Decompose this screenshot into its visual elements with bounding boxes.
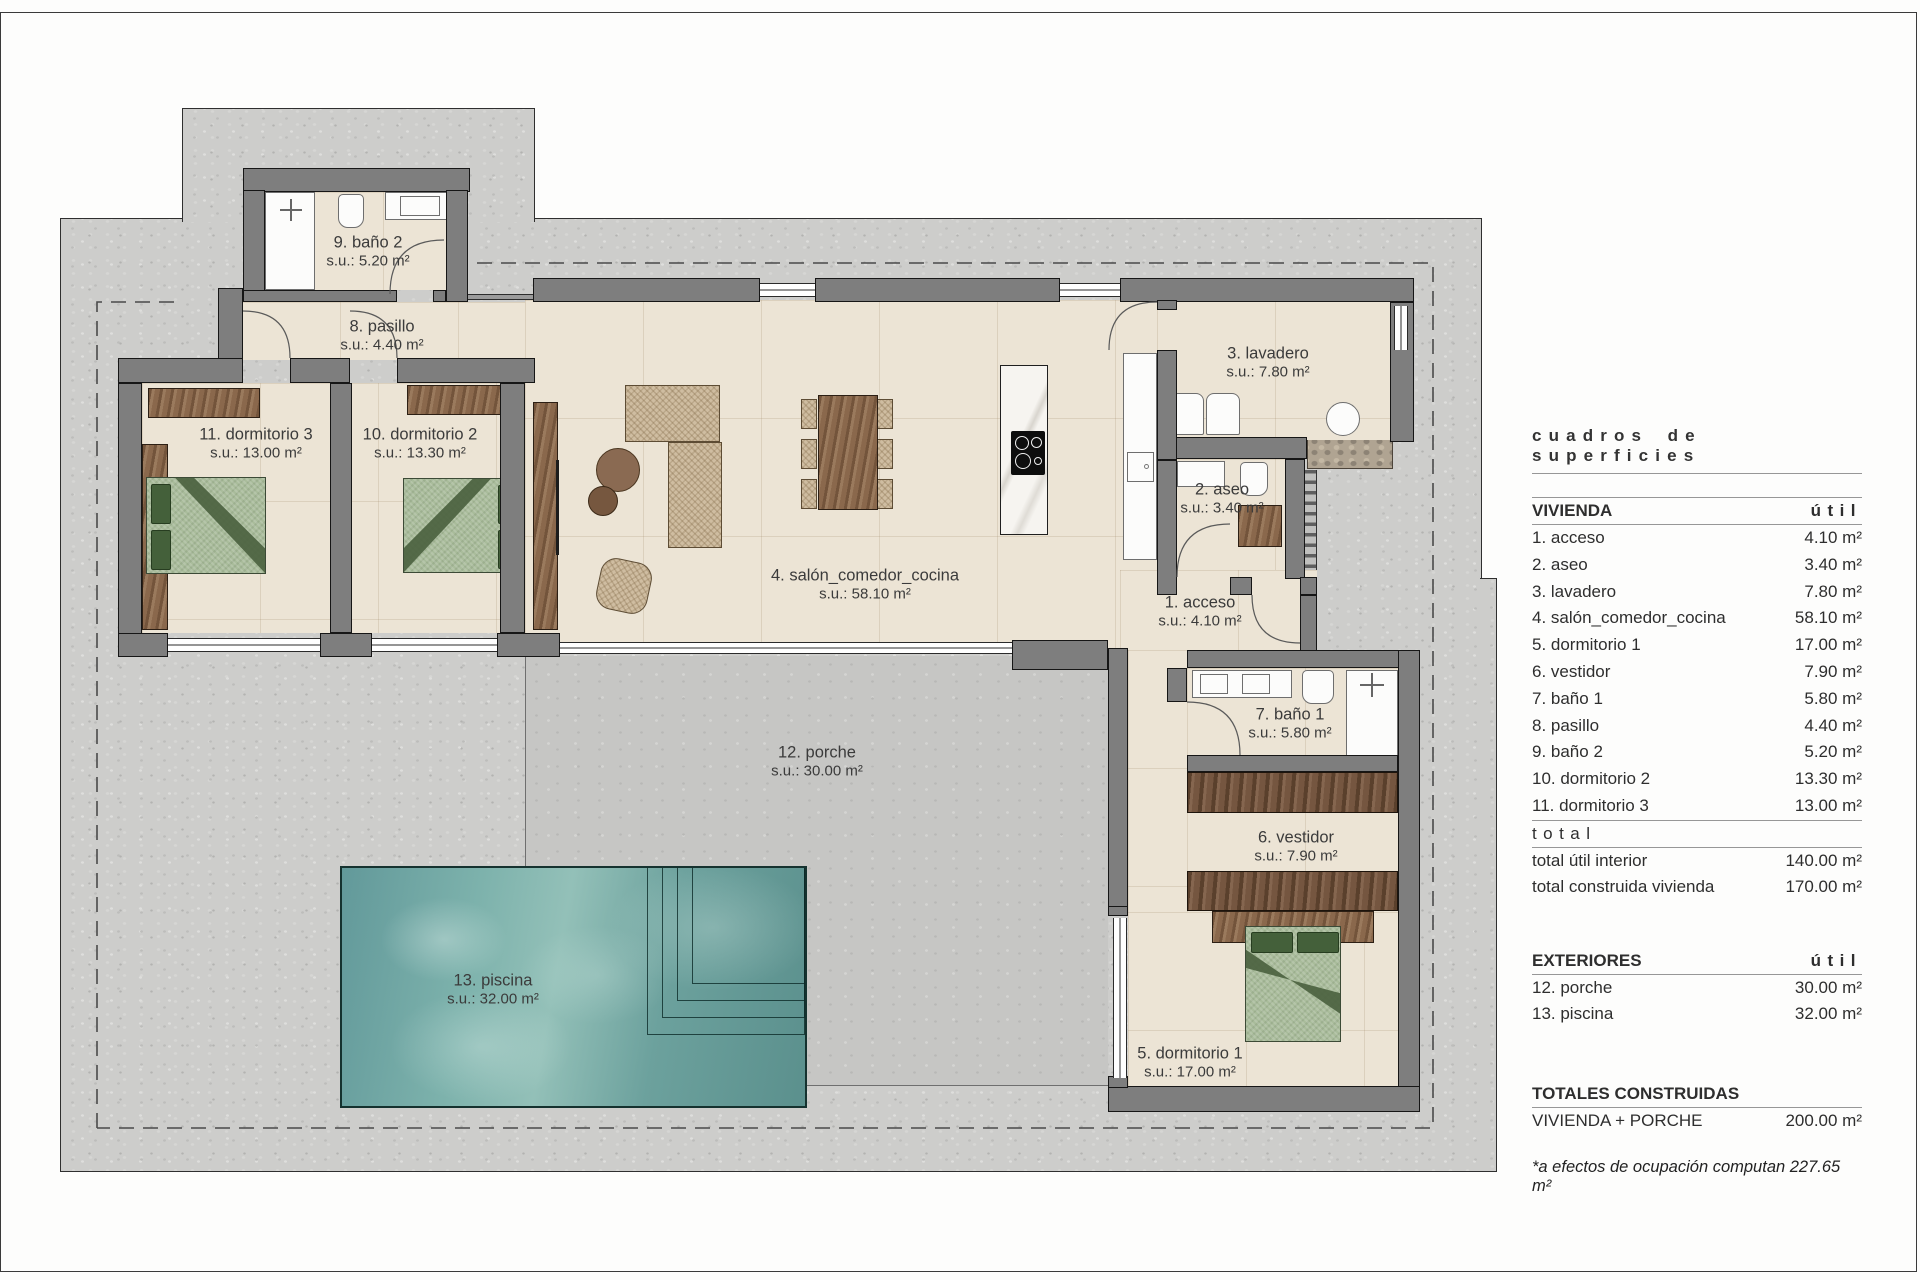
wall	[1157, 350, 1177, 460]
pool-steps-4	[692, 868, 805, 984]
room-area: s.u.: 32.00 m²	[447, 990, 539, 1008]
section-header: EXTERIORES	[1532, 951, 1642, 971]
wall	[118, 633, 168, 657]
dining-chair	[801, 399, 817, 429]
table-title: cuadros de superficies	[1532, 426, 1862, 466]
room-name: 3. lavadero	[1226, 346, 1309, 364]
room-area: s.u.: 3.40 m²	[1180, 499, 1263, 517]
entry-path-pebbles	[1307, 435, 1393, 469]
wall	[1108, 648, 1128, 914]
wall	[1300, 595, 1317, 652]
row-value: 17.00 m²	[1795, 632, 1862, 659]
sink-bano1	[1200, 674, 1228, 694]
room-label-pasillo: 8. pasillo s.u.: 4.40 m²	[340, 319, 423, 354]
wardrobe-vestidor-top	[1187, 772, 1398, 813]
window	[372, 638, 497, 652]
sink-bano1	[1242, 674, 1270, 694]
sliding-door	[560, 642, 1012, 654]
dining-chair	[877, 439, 893, 469]
sink-bano2	[400, 196, 440, 216]
boiler	[1326, 402, 1360, 436]
table-row: total útil interior140.00 m²	[1532, 848, 1862, 875]
room-area: s.u.: 13.30 m²	[363, 444, 478, 462]
plot-ground-right	[1480, 578, 1497, 1172]
table-row: 6. vestidor7.90 m²	[1532, 659, 1862, 686]
wall	[118, 383, 142, 657]
wardrobe-vestidor-bottom	[1187, 871, 1398, 911]
wall	[1167, 668, 1187, 702]
shower-faucet-icon	[1371, 673, 1373, 697]
total-section-header: total	[1532, 821, 1862, 847]
row-label: total útil interior	[1532, 848, 1647, 875]
wall	[330, 383, 352, 633]
table-row: 13. piscina32.00 m²	[1532, 1001, 1862, 1028]
room-name: 8. pasillo	[340, 319, 423, 337]
row-value: 58.10 m²	[1795, 605, 1862, 632]
room-name: 5. dormitorio 1	[1137, 1046, 1242, 1064]
row-value: 200.00 m²	[1785, 1108, 1862, 1135]
row-value: 32.00 m²	[1795, 1001, 1862, 1028]
dining-chair	[801, 439, 817, 469]
room-label-dormitorio1: 5. dormitorio 1 s.u.: 17.00 m²	[1137, 1046, 1242, 1081]
row-value: 13.00 m²	[1795, 793, 1862, 820]
row-label: 10. dormitorio 2	[1532, 766, 1650, 793]
surface-table: cuadros de superficies VIVIENDA útil 1. …	[1532, 426, 1862, 1196]
sofa-top	[625, 385, 720, 442]
section-header: TOTALES CONSTRUIDAS	[1532, 1084, 1739, 1104]
row-value: 5.80 m²	[1804, 686, 1862, 713]
room-name: 6. vestidor	[1254, 830, 1337, 848]
room-area: s.u.: 13.00 m²	[199, 444, 312, 462]
row-value: 30.00 m²	[1795, 975, 1862, 1002]
wall	[446, 190, 468, 302]
bed-pillow	[151, 484, 171, 524]
shower-faucet-icon	[290, 199, 292, 221]
sideboard-salon	[533, 402, 558, 630]
room-label-porche: 12. porche s.u.: 30.00 m²	[771, 745, 863, 780]
row-value: 13.30 m²	[1795, 766, 1862, 793]
toilet-bano1	[1302, 670, 1334, 704]
room-name: 10. dormitorio 2	[363, 427, 478, 445]
room-name: 11. dormitorio 3	[199, 427, 312, 445]
room-label-piscina: 13. piscina s.u.: 32.00 m²	[447, 973, 539, 1008]
room-label-vestidor: 6. vestidor s.u.: 7.90 m²	[1254, 830, 1337, 865]
dining-table	[818, 395, 878, 510]
window	[760, 283, 815, 297]
row-value: 5.20 m²	[1804, 739, 1862, 766]
wall	[243, 168, 470, 192]
room-area: s.u.: 58.10 m²	[771, 585, 959, 603]
table-row: 8. pasillo4.40 m²	[1532, 713, 1862, 740]
room-name: 13. piscina	[447, 973, 539, 991]
row-value: 170.00 m²	[1785, 874, 1862, 901]
table-row: total construida vivienda170.00 m²	[1532, 874, 1862, 901]
row-label: VIVIENDA + PORCHE	[1532, 1108, 1703, 1135]
window	[1394, 306, 1408, 350]
totales-header-row: TOTALES CONSTRUIDAS	[1532, 1081, 1862, 1107]
bed-pillow	[1251, 932, 1293, 953]
tv-icon	[556, 460, 559, 555]
room-name: 4. salón_comedor_cocina	[771, 568, 959, 586]
table-row: 9. baño 25.20 m²	[1532, 739, 1862, 766]
row-label: 11. dormitorio 3	[1532, 793, 1649, 820]
room-name: 1. acceso	[1158, 595, 1241, 613]
coffee-table-small	[588, 486, 618, 516]
row-label: 2. aseo	[1532, 552, 1588, 579]
wall	[497, 633, 560, 657]
sink-drain-icon	[1144, 464, 1149, 469]
table-row: 5. dormitorio 117.00 m²	[1532, 632, 1862, 659]
dining-chair	[801, 479, 817, 509]
row-label: 4. salón_comedor_cocina	[1532, 605, 1726, 632]
room-area: s.u.: 30.00 m²	[771, 762, 863, 780]
row-label: 8. pasillo	[1532, 713, 1599, 740]
vivienda-header-row: VIVIENDA útil	[1532, 498, 1862, 524]
kitchen-sink	[1127, 452, 1154, 482]
wall	[320, 633, 372, 657]
room-area: s.u.: 17.00 m²	[1137, 1063, 1242, 1081]
room-label-bano2: 9. baño 2 s.u.: 5.20 m²	[326, 235, 409, 270]
room-label-aseo: 2. aseo s.u.: 3.40 m²	[1180, 482, 1263, 517]
floor-plan-sheet: 1. acceso s.u.: 4.10 m² 2. aseo s.u.: 3.…	[0, 0, 1920, 1280]
row-label: 3. lavadero	[1532, 579, 1616, 606]
wall	[1157, 460, 1177, 595]
table-row: 1. acceso4.10 m²	[1532, 525, 1862, 552]
toilet-bano2	[338, 194, 364, 228]
wall	[1187, 755, 1398, 772]
table-row: 7. baño 15.80 m²	[1532, 686, 1862, 713]
row-value: 140.00 m²	[1785, 848, 1862, 875]
row-label: total construida vivienda	[1532, 874, 1714, 901]
wall	[1230, 577, 1252, 595]
row-label: 9. baño 2	[1532, 739, 1603, 766]
room-area: s.u.: 5.20 m²	[326, 252, 409, 270]
burner-icon	[1034, 457, 1042, 465]
door-jamb	[1157, 300, 1177, 310]
room-label-acceso: 1. acceso s.u.: 4.10 m²	[1158, 595, 1241, 630]
table-row: 3. lavadero7.80 m²	[1532, 579, 1862, 606]
room-area: s.u.: 4.10 m²	[1158, 612, 1241, 630]
table-row: 11. dormitorio 313.00 m²	[1532, 793, 1862, 820]
room-name: 7. baño 1	[1248, 707, 1331, 725]
room-name: 12. porche	[771, 745, 863, 763]
washer	[1206, 393, 1240, 435]
room-area: s.u.: 7.80 m²	[1226, 363, 1309, 381]
bed-dormitorio1	[1245, 926, 1341, 1042]
bed-dormitorio3	[146, 477, 266, 574]
wall	[1187, 650, 1420, 668]
row-label: 5. dormitorio 1	[1532, 632, 1641, 659]
burner-icon	[1031, 437, 1042, 448]
wall	[500, 383, 525, 633]
room-name: 9. baño 2	[326, 235, 409, 253]
wardrobe-dormitorio3	[148, 388, 260, 418]
table-row: 12. porche30.00 m²	[1532, 975, 1862, 1002]
row-label: 7. baño 1	[1532, 686, 1603, 713]
kitchen-island	[1000, 365, 1048, 535]
window	[1113, 918, 1127, 1078]
room-label-dormitorio2: 10. dormitorio 2 s.u.: 13.30 m²	[363, 427, 478, 462]
section-header: VIVIENDA	[1532, 501, 1612, 521]
wall	[1108, 906, 1128, 916]
wall	[1157, 437, 1307, 459]
room-name: 2. aseo	[1180, 482, 1263, 500]
wall	[1120, 278, 1414, 302]
wall	[1012, 640, 1108, 670]
wall	[533, 278, 760, 302]
window	[1060, 283, 1120, 297]
row-label: 6. vestidor	[1532, 659, 1610, 686]
row-value: 4.40 m²	[1804, 713, 1862, 740]
table-row: 2. aseo3.40 m²	[1532, 552, 1862, 579]
room-label-dormitorio3: 11. dormitorio 3 s.u.: 13.00 m²	[199, 427, 312, 462]
row-value: 7.80 m²	[1804, 579, 1862, 606]
wall	[1285, 459, 1305, 579]
dining-chair	[877, 479, 893, 509]
row-label: 1. acceso	[1532, 525, 1605, 552]
wall	[397, 358, 535, 383]
door-jamb	[433, 290, 446, 302]
row-value: 7.90 m²	[1804, 659, 1862, 686]
wall	[815, 278, 1060, 302]
burner-icon	[1015, 453, 1031, 469]
wall	[118, 358, 243, 383]
room-area: s.u.: 5.80 m²	[1248, 724, 1331, 742]
room-label-salon: 4. salón_comedor_cocina s.u.: 58.10 m²	[771, 568, 959, 603]
bed-pillow	[1297, 932, 1339, 953]
exteriores-header-row: EXTERIORES útil	[1532, 948, 1862, 974]
sofa-side	[668, 442, 722, 548]
burner-icon	[1015, 436, 1029, 450]
row-value: 3.40 m²	[1804, 552, 1862, 579]
table-row: 4. salón_comedor_cocina58.10 m²	[1532, 605, 1862, 632]
wall	[290, 358, 350, 383]
row-value: 4.10 m²	[1804, 525, 1862, 552]
unit-column-header: útil	[1811, 501, 1862, 521]
wall	[1108, 1086, 1420, 1112]
window	[168, 638, 320, 652]
room-area: s.u.: 4.40 m²	[340, 336, 423, 354]
cooktop	[1011, 431, 1045, 475]
wall	[243, 190, 265, 302]
row-label: 13. piscina	[1532, 1001, 1613, 1028]
row-label: 12. porche	[1532, 975, 1612, 1002]
dining-chair	[877, 399, 893, 429]
table-row: VIVIENDA + PORCHE200.00 m²	[1532, 1108, 1862, 1135]
wall	[1398, 650, 1420, 1112]
room-label-bano1: 7. baño 1 s.u.: 5.80 m²	[1248, 707, 1331, 742]
wall	[243, 290, 397, 302]
unit-column-header: útil	[1811, 951, 1862, 971]
bed-pillow	[151, 530, 171, 570]
room-label-lavadero: 3. lavadero s.u.: 7.80 m²	[1226, 346, 1309, 381]
table-row: 10. dormitorio 213.30 m²	[1532, 766, 1862, 793]
door-jamb	[1300, 577, 1317, 595]
occupancy-footnote: *a efectos de ocupación computan 227.65 …	[1532, 1158, 1862, 1196]
room-area: s.u.: 7.90 m²	[1254, 847, 1337, 865]
wall	[218, 288, 243, 362]
